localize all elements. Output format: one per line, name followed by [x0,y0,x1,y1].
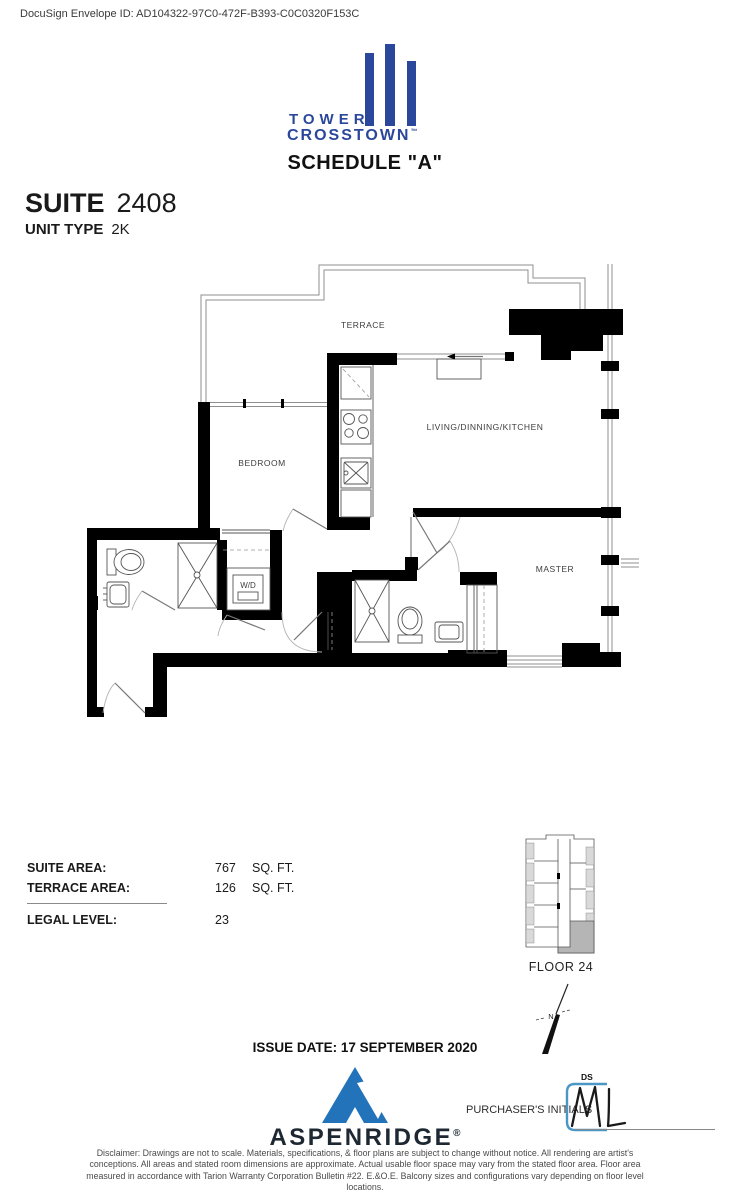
terrace-area-label: TERRACE AREA: [27,881,130,895]
ensuite-bathroom [355,580,463,643]
ensuite-toilet-bowl [398,607,422,635]
docusign-ds-label: DS [579,1072,595,1082]
keyplan [518,833,604,959]
suite-area-label: SUITE AREA: [27,861,106,875]
aspenridge-logo [321,1067,389,1124]
unit-type-row: UNIT TYPE2K [25,221,130,238]
bedroom-label: BEDROOM [238,458,285,468]
logo-bar-2 [385,44,395,126]
suite-area-unit: SQ. FT. [252,861,294,875]
living-sliding-door [397,354,506,380]
suite-header: SUITE2408 [25,188,177,219]
logo-tower-text: TOWER [289,111,370,128]
keyplan-highlighted-unit [558,921,594,953]
suite-area-value: 767 [215,861,236,875]
master-label: MASTER [536,564,574,574]
ensuite-toilet-tank [398,635,422,643]
legal-level-value: 23 [215,913,229,927]
main-bathroom [103,543,217,608]
master-south-window [507,656,562,667]
aspenridge-name: ASPENRIDGE [269,1124,453,1151]
suite-number: 2408 [117,188,177,218]
kitchen [341,365,373,517]
schedule-title: SCHEDULE "A" [10,152,720,175]
terrace-area-unit: SQ. FT. [252,881,294,895]
initials-line [575,1129,715,1130]
keyplan-floor-label: FLOOR 24 [518,960,604,974]
living-label: LIVING/DINNING/KITCHEN [427,422,544,432]
wd-label: W/D [240,581,256,590]
terrace-label: TERRACE [341,320,385,330]
aspenridge-registered-mark: ® [453,1128,460,1139]
logo-crosstown-word: CROSSTOWN [287,127,410,144]
legal-level-label: LEGAL LEVEL: [27,913,117,927]
tower-crosstown-logo-bars [362,42,420,126]
floor-plan: TERRACE LIVING/DINNING/KITCHEN BEDROOM M… [85,258,655,738]
unit-type-label: UNIT TYPE [25,221,103,238]
suite-label: SUITE [25,188,105,218]
logo-trademark: ™ [410,129,419,136]
document-page: DocuSign Envelope ID: AD104322-97C0-472F… [0,0,729,1200]
terrace-area-value: 126 [215,881,236,895]
logo-bar-3 [407,61,416,126]
docusign-initial-stamp[interactable]: DS [563,1072,719,1138]
unit-type-value: 2K [111,221,129,238]
north-label: N [548,1012,553,1021]
kitchen-cabinet-lower [341,490,371,517]
purchaser-initials-signature [569,1082,633,1134]
issue-date: ISSUE DATE: 17 SEPTEMBER 2020 [10,1040,720,1055]
bedroom-window [210,399,327,408]
docusign-envelope-id: DocuSign Envelope ID: AD104322-97C0-472F… [20,8,359,20]
logo-crosstown-text: CROSSTOWN™ [287,127,419,145]
area-divider [27,903,167,904]
disclaimer-text: Disclaimer: Drawings are not to scale. M… [80,1148,650,1194]
